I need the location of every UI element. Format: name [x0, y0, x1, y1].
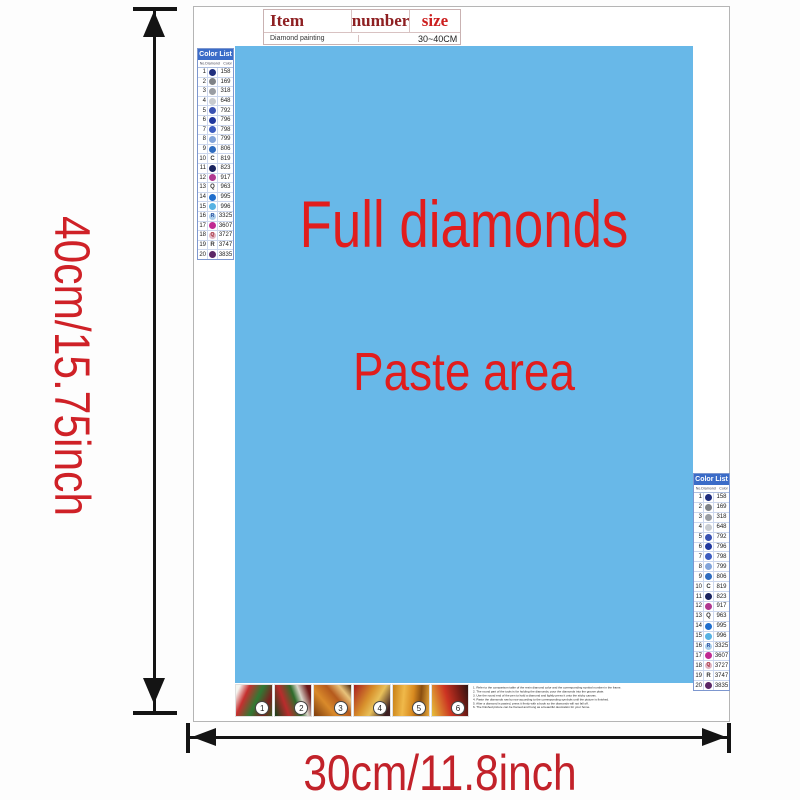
row-number: 20	[198, 252, 207, 258]
paste-area-title: Full diamonds	[281, 186, 647, 262]
color-list-row: 7798	[694, 551, 729, 561]
dmc-color-code: 823	[714, 594, 729, 600]
color-dot-icon	[209, 222, 216, 229]
row-number: 12	[198, 175, 207, 181]
row-number: 3	[198, 88, 207, 94]
diamond-symbol-cell: Q	[207, 231, 218, 240]
row-number: 7	[694, 554, 703, 560]
color-dot-icon	[209, 107, 216, 114]
column-color: Color	[719, 486, 728, 490]
diamond-symbol-cell	[703, 592, 714, 601]
diamond-symbol-cell	[207, 126, 218, 135]
row-number: 13	[694, 613, 703, 619]
dmc-color-code: 806	[218, 146, 233, 152]
paste-area: Full diamonds Paste area	[235, 46, 693, 683]
column-no: No.	[200, 61, 204, 65]
color-dot-icon	[209, 165, 216, 172]
dmc-color-code: 798	[714, 554, 729, 560]
color-list-row: 9806	[198, 144, 233, 154]
color-dot-icon	[209, 117, 216, 124]
dmc-color-code: 648	[218, 98, 233, 104]
spec-header-item: Item	[264, 10, 352, 32]
column-diamond: Diamond	[706, 486, 711, 490]
spec-value-size: 30~40CM	[418, 34, 460, 44]
dmc-color-code: 3727	[218, 232, 233, 238]
dmc-color-code: 792	[714, 534, 729, 540]
color-dot-icon	[705, 563, 712, 570]
color-list-row: 3318	[198, 86, 233, 96]
dmc-color-code: 819	[218, 156, 233, 162]
dmc-color-code: 963	[714, 613, 729, 619]
arrow-down-icon	[143, 678, 165, 704]
color-dot-icon	[209, 98, 216, 105]
color-dot-icon	[705, 633, 712, 640]
color-list-row: 18Q3727	[694, 660, 729, 670]
diamond-symbol-cell	[703, 622, 714, 631]
color-list-left: Color List No. Diamond Color 11582169331…	[197, 48, 234, 260]
diamond-symbol-cell	[207, 145, 218, 154]
diamond-symbol-cell	[703, 493, 714, 502]
symbol-letter: Q	[210, 184, 215, 190]
color-dot-icon	[705, 494, 712, 501]
step-number-badge: 2	[294, 701, 308, 715]
dmc-color-code: 3325	[218, 213, 233, 219]
symbol-letter: R	[706, 673, 710, 679]
diamond-symbol-cell	[207, 135, 218, 144]
diamond-symbol-cell	[207, 250, 218, 259]
diamond-symbol-cell	[207, 116, 218, 125]
dmc-color-code: 3325	[714, 643, 729, 649]
row-number: 15	[198, 204, 207, 210]
color-list-row: 10C819	[694, 581, 729, 591]
color-list-row: 8799	[198, 134, 233, 144]
step-number-badge: 6	[451, 701, 465, 715]
step-thumbnails: 123456	[235, 684, 469, 717]
dmc-color-code: 917	[714, 603, 729, 609]
color-list-row: 16R3325	[694, 641, 729, 651]
color-list-row: 4648	[694, 522, 729, 532]
dmc-color-code: 995	[714, 623, 729, 629]
diamond-symbol-cell	[703, 543, 714, 552]
diamond-symbol-cell	[207, 164, 218, 173]
diamond-symbol-cell: R	[703, 671, 714, 680]
dmc-color-code: 3607	[218, 223, 233, 229]
diamond-symbol-cell: C	[207, 154, 218, 163]
color-list-row: 6796	[198, 115, 233, 125]
diamond-symbol-cell	[703, 652, 714, 661]
row-number: 19	[198, 242, 207, 248]
diamond-symbol-cell	[703, 681, 714, 690]
color-list-row: 1158	[198, 68, 233, 77]
row-number: 10	[198, 156, 207, 162]
diamond-symbol-cell	[207, 87, 218, 96]
row-number: 5	[198, 108, 207, 114]
color-list-row: 13Q963	[198, 182, 233, 192]
row-number: 18	[694, 663, 703, 669]
color-list-row: 13Q963	[694, 611, 729, 621]
product-size-diagram: 40cm/15.75inch 30cm/11.8inch Item number…	[0, 0, 800, 800]
dmc-color-code: 3747	[714, 673, 729, 679]
dmc-color-code: 169	[714, 504, 729, 510]
color-list-row: 203835	[694, 680, 729, 690]
diamond-symbol-cell	[207, 202, 218, 211]
row-number: 3	[694, 514, 703, 520]
color-dot-icon	[209, 203, 216, 210]
color-list-row: 3318	[694, 512, 729, 522]
height-dimension-label: 40cm/15.75inch	[49, 188, 101, 545]
color-dot-icon	[705, 514, 712, 521]
diamond-symbol-cell	[703, 523, 714, 532]
dmc-color-code: 819	[714, 584, 729, 590]
canvas-sheet: Item number size Diamond painting 30~40C…	[193, 6, 730, 722]
dmc-color-code: 169	[218, 79, 233, 85]
diamond-symbol-cell	[703, 533, 714, 542]
color-dot-icon: R	[705, 643, 712, 650]
row-number: 10	[694, 584, 703, 590]
row-number: 11	[198, 165, 207, 171]
color-dot-icon	[705, 504, 712, 511]
step-thumbnail: 6	[431, 684, 469, 717]
step-thumbnail: 3	[313, 684, 351, 717]
dmc-color-code: 3607	[714, 653, 729, 659]
color-list-row: 12917	[198, 173, 233, 183]
step-thumbnail: 4	[353, 684, 391, 717]
row-number: 14	[694, 623, 703, 629]
color-dot-icon	[209, 146, 216, 153]
diamond-symbol-cell: R	[207, 212, 218, 221]
color-dot-icon	[209, 78, 216, 85]
symbol-letter: C	[706, 584, 710, 590]
color-dot-icon: R	[209, 213, 216, 220]
dmc-color-code: 823	[218, 165, 233, 171]
dmc-color-code: 796	[714, 544, 729, 550]
diamond-symbol-cell	[207, 78, 218, 87]
color-list-row: 15996	[198, 201, 233, 211]
diamond-symbol-cell	[207, 97, 218, 106]
color-list-subheader: No. Diamond Color	[694, 485, 729, 493]
color-dot-icon	[209, 69, 216, 76]
diamond-symbol-cell	[703, 632, 714, 641]
color-dot-icon	[705, 553, 712, 560]
color-list-row: 15996	[694, 631, 729, 641]
diamond-symbol-cell	[207, 68, 218, 77]
row-number: 17	[694, 653, 703, 659]
spec-header-number: number	[352, 10, 410, 32]
diamond-symbol-cell	[703, 602, 714, 611]
color-list-row: 11823	[694, 591, 729, 601]
dmc-color-code: 917	[218, 175, 233, 181]
vertical-arrow-bottom-cap	[133, 711, 177, 715]
color-list-row: 9806	[694, 571, 729, 581]
symbol-letter: R	[210, 242, 214, 248]
horizontal-arrow-line	[190, 736, 728, 739]
row-number: 8	[694, 564, 703, 570]
color-list-title: Color List	[694, 474, 729, 485]
step-thumbnail: 1	[235, 684, 273, 717]
dmc-color-code: 3835	[218, 252, 233, 258]
color-list-title: Color List	[198, 49, 233, 60]
row-number: 7	[198, 127, 207, 133]
color-dot-icon	[705, 682, 712, 689]
arrow-right-icon	[702, 728, 726, 746]
color-list-row: 5792	[694, 532, 729, 542]
color-list-rows: 11582169331846485792679677988799980610C8…	[198, 68, 233, 259]
color-dot-icon: Q	[705, 662, 712, 669]
color-list-subheader: No. Diamond Color	[198, 60, 233, 68]
spec-header-size: size	[410, 10, 460, 32]
row-number: 17	[198, 223, 207, 229]
diamond-symbol-cell: Q	[207, 183, 218, 192]
dmc-color-code: 648	[714, 524, 729, 530]
color-list-row: 10C819	[198, 153, 233, 163]
row-number: 16	[694, 643, 703, 649]
color-dot-icon	[209, 174, 216, 181]
diamond-symbol-cell	[207, 193, 218, 202]
color-dot-icon	[705, 543, 712, 550]
color-list-row: 11823	[198, 163, 233, 173]
dmc-color-code: 996	[218, 204, 233, 210]
diamond-symbol-cell: C	[703, 582, 714, 591]
row-number: 15	[694, 633, 703, 639]
step-thumbnail: 2	[274, 684, 312, 717]
diamond-symbol-cell	[207, 106, 218, 115]
dmc-color-code: 318	[714, 514, 729, 520]
dmc-color-code: 996	[714, 633, 729, 639]
diamond-symbol-cell: R	[703, 642, 714, 651]
dmc-color-code: 158	[218, 69, 233, 75]
color-list-row: 4648	[198, 96, 233, 106]
color-dot-icon: Q	[209, 232, 216, 239]
symbol-letter: C	[210, 156, 214, 162]
row-number: 14	[198, 194, 207, 200]
row-number: 18	[198, 232, 207, 238]
step-number-badge: 5	[412, 701, 426, 715]
row-number: 6	[694, 544, 703, 550]
color-list-row: 19R3747	[694, 670, 729, 680]
instruction-line: 6. The finished picture can be framed an…	[473, 706, 687, 710]
dmc-color-code: 806	[714, 574, 729, 580]
dmc-color-code: 995	[218, 194, 233, 200]
color-dot-icon	[209, 136, 216, 143]
diamond-symbol-cell	[703, 562, 714, 571]
width-dimension-label: 30cm/11.8inch	[270, 744, 610, 800]
color-dot-icon	[705, 593, 712, 600]
dmc-color-code: 3747	[218, 242, 233, 248]
color-list-row: 12917	[694, 601, 729, 611]
color-dot-icon	[705, 534, 712, 541]
step-number-badge: 3	[334, 701, 348, 715]
step-thumbnail: 5	[392, 684, 430, 717]
column-diamond: Diamond	[210, 61, 215, 65]
spec-value-item: Diamond painting	[264, 35, 359, 42]
diamond-symbol-cell: R	[207, 241, 218, 250]
color-list-row: 2169	[198, 77, 233, 87]
diamond-symbol-cell	[207, 174, 218, 183]
color-list-row: 8799	[694, 561, 729, 571]
row-number: 11	[694, 594, 703, 600]
color-dot-icon	[209, 88, 216, 95]
row-number: 16	[198, 213, 207, 219]
color-list-rows: 11582169331846485792679677988799980610C8…	[694, 493, 729, 690]
row-number: 4	[694, 524, 703, 530]
spec-table-header: Item number size	[264, 10, 460, 32]
arrow-up-icon	[143, 11, 165, 37]
color-list-row: 173607	[198, 221, 233, 231]
dmc-color-code: 3835	[714, 683, 729, 689]
vertical-arrow-line	[153, 9, 156, 713]
dmc-color-code: 3727	[714, 663, 729, 669]
color-list-row: 18Q3727	[198, 230, 233, 240]
dmc-color-code: 799	[218, 136, 233, 142]
instruction-text-block: 1. Refer to the comparison table of the …	[473, 686, 687, 718]
color-dot-icon	[209, 194, 216, 201]
arrow-left-icon	[192, 728, 216, 746]
dmc-color-code: 796	[218, 117, 233, 123]
color-dot-icon	[705, 524, 712, 531]
row-number: 4	[198, 98, 207, 104]
color-dot-icon	[705, 603, 712, 610]
spec-table: Item number size Diamond painting 30~40C…	[263, 9, 461, 45]
row-number: 12	[694, 603, 703, 609]
dmc-color-code: 158	[714, 494, 729, 500]
instruction-lines: 1. Refer to the comparison table of the …	[473, 686, 687, 709]
column-no: No.	[696, 486, 700, 490]
diamond-symbol-cell	[703, 572, 714, 581]
dmc-color-code: 792	[218, 108, 233, 114]
row-number: 9	[694, 574, 703, 580]
color-list-row: 173607	[694, 651, 729, 661]
diamond-symbol-cell	[703, 503, 714, 512]
color-dot-icon	[705, 623, 712, 630]
row-number: 20	[694, 683, 703, 689]
dmc-color-code: 798	[218, 127, 233, 133]
dmc-color-code: 963	[218, 184, 233, 190]
step-number-badge: 4	[373, 701, 387, 715]
color-list-row: 5792	[198, 105, 233, 115]
row-number: 19	[694, 673, 703, 679]
row-number: 2	[198, 79, 207, 85]
color-list-right: Color List No. Diamond Color 11582169331…	[693, 473, 730, 691]
row-number: 13	[198, 184, 207, 190]
row-number: 8	[198, 136, 207, 142]
row-number: 2	[694, 504, 703, 510]
paste-area-subtitle: Paste area	[269, 341, 658, 403]
symbol-letter: Q	[706, 613, 711, 619]
color-list-row: 14995	[198, 192, 233, 202]
dmc-color-code: 799	[714, 564, 729, 570]
diamond-symbol-cell	[703, 552, 714, 561]
row-number: 9	[198, 146, 207, 152]
color-dot-icon	[209, 251, 216, 258]
row-number: 5	[694, 534, 703, 540]
color-list-row: 16R3325	[198, 211, 233, 221]
color-list-row: 1158	[694, 493, 729, 502]
diamond-symbol-cell	[703, 513, 714, 522]
row-number: 1	[198, 69, 207, 75]
color-dot-icon	[705, 652, 712, 659]
row-number: 6	[198, 117, 207, 123]
diamond-symbol-cell: Q	[703, 661, 714, 670]
step-number-badge: 1	[255, 701, 269, 715]
diamond-symbol-cell	[207, 222, 218, 231]
color-dot-icon	[209, 126, 216, 133]
row-number: 1	[694, 494, 703, 500]
color-list-row: 203835	[198, 249, 233, 259]
dmc-color-code: 318	[218, 88, 233, 94]
color-list-row: 7798	[198, 125, 233, 135]
diamond-symbol-cell: Q	[703, 612, 714, 621]
color-list-row: 2169	[694, 502, 729, 512]
spec-table-row: Diamond painting 30~40CM	[264, 32, 460, 44]
horizontal-arrow-right-cap	[727, 723, 731, 753]
color-dot-icon	[705, 573, 712, 580]
color-list-row: 19R3747	[198, 240, 233, 250]
color-list-row: 6796	[694, 542, 729, 552]
column-color: Color	[223, 61, 232, 65]
color-list-row: 14995	[694, 621, 729, 631]
